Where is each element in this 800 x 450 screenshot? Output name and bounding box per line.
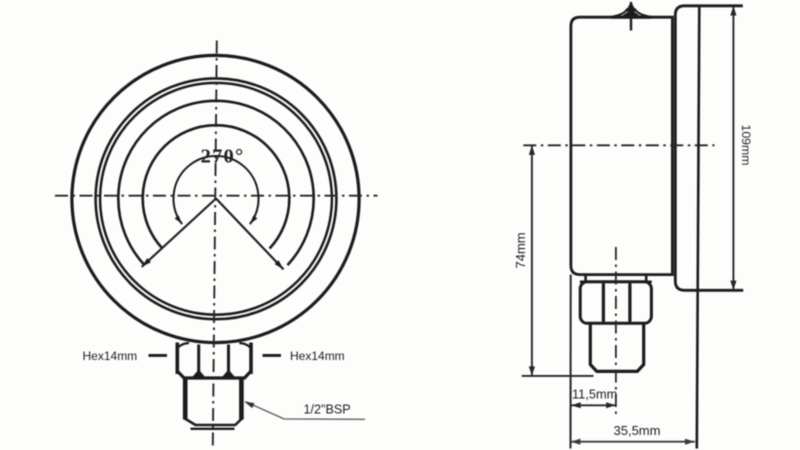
svg-text:1/2"BSP: 1/2"BSP xyxy=(304,403,351,417)
svg-text:Hex14mm: Hex14mm xyxy=(83,349,138,363)
svg-text:Hex14mm: Hex14mm xyxy=(290,349,345,363)
svg-text:270°: 270° xyxy=(201,146,245,168)
svg-text:74mm: 74mm xyxy=(513,232,528,268)
svg-text:11,5mm: 11,5mm xyxy=(572,386,617,401)
svg-text:109mm: 109mm xyxy=(739,125,753,166)
svg-text:35,5mm: 35,5mm xyxy=(614,423,661,438)
